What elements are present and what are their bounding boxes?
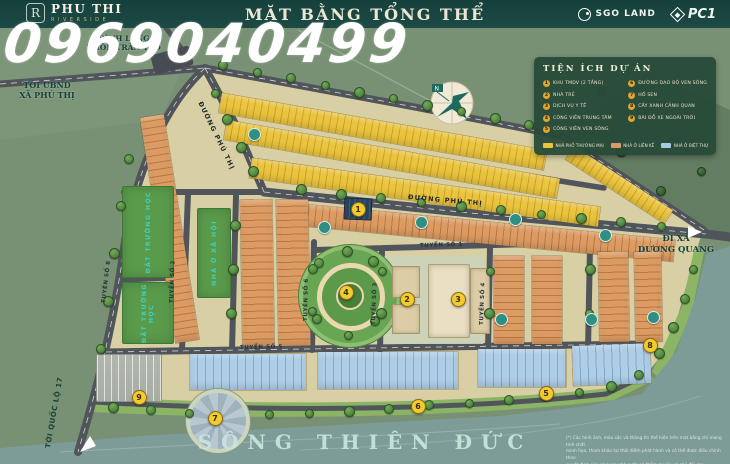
tree-icon bbox=[108, 402, 119, 413]
legend-zone: NHÀ Ở BIỆT THỰ bbox=[661, 143, 708, 148]
tree-icon bbox=[490, 113, 501, 124]
tree-icon bbox=[457, 107, 466, 116]
partner-pc1-label: PC1 bbox=[688, 7, 716, 22]
zone-swatch bbox=[661, 143, 671, 148]
legend-item-number-badge: 3 bbox=[543, 103, 550, 110]
tree-icon bbox=[342, 246, 353, 257]
legend-zone: NHÀ Ở LIỀN KỀ bbox=[611, 143, 655, 148]
tree-icon bbox=[96, 344, 106, 354]
to-ubnd-line2: XÃ PHÚ THỊ bbox=[4, 90, 90, 100]
tree-icon bbox=[354, 87, 365, 98]
legend-column-1: 1KHU TMDV (2 TẦNG)2NHÀ TRẺ3DỊCH VỤ Y TẾ4… bbox=[543, 80, 620, 138]
outdoor-parking-lot bbox=[96, 354, 162, 402]
tree-icon bbox=[296, 184, 307, 195]
tree-icon bbox=[248, 166, 259, 177]
block-code-badge bbox=[318, 221, 331, 234]
legend-item: 6ĐƯỜNG DẠO BỘ VEN SÔNG bbox=[628, 80, 707, 87]
townhouse-column bbox=[532, 256, 562, 344]
partner-sgo-land-label: SGO LAND bbox=[596, 9, 656, 19]
tree-icon bbox=[336, 189, 347, 200]
tree-icon bbox=[124, 154, 134, 164]
legend-item-label: CÔNG VIÊN VEN SÔNG bbox=[553, 127, 609, 132]
partner-logos: SGO LAND PC1 bbox=[578, 0, 716, 28]
tree-icon bbox=[689, 265, 698, 274]
to-duong-quang-label: ĐI XÃ DƯƠNG QUANG bbox=[628, 234, 724, 255]
legend-item-number-badge: 2 bbox=[543, 92, 550, 99]
legend-item-number-badge: 5 bbox=[543, 126, 550, 133]
pc1-diamond-icon bbox=[670, 6, 686, 22]
legend-item: 5CÔNG VIÊN VEN SÔNG bbox=[543, 126, 620, 133]
legend-item-label: KHU TMDV (2 TẦNG) bbox=[553, 81, 603, 86]
partner-pc1: PC1 bbox=[672, 7, 716, 22]
amenity-marker-3: 3 bbox=[451, 292, 466, 307]
tree-icon bbox=[344, 331, 353, 340]
townhouse-column bbox=[598, 251, 630, 342]
legend-item-label: CÔNG VIÊN TRUNG TÂM bbox=[553, 116, 612, 121]
kindergarten-building-2 bbox=[392, 304, 420, 334]
tree-icon bbox=[312, 314, 322, 324]
tree-icon bbox=[422, 100, 433, 111]
social-housing-label: NHÀ Ở XÃ HỘI bbox=[211, 220, 218, 286]
tree-icon bbox=[265, 410, 274, 419]
disclaimer-text: (*) Các hình ảnh, màu sắc và thông tin t… bbox=[566, 436, 724, 464]
tree-icon bbox=[524, 120, 534, 130]
zone-swatch bbox=[543, 143, 553, 148]
block-code-badge bbox=[509, 213, 522, 226]
block-code-badge bbox=[248, 128, 261, 141]
tree-icon bbox=[230, 220, 241, 231]
sgo-land-icon bbox=[578, 8, 591, 21]
zone-label: NHÀ PHỐ THƯƠNG MẠI bbox=[556, 143, 604, 148]
tree-icon bbox=[465, 399, 474, 408]
tree-icon bbox=[656, 186, 666, 196]
phone-watermark: 0969040499 bbox=[1, 12, 413, 75]
site-plan-poster: N ĐẤT TRƯỜNG HỌC ĐẤT TRƯỜNG HỌC NHÀ Ở XÃ… bbox=[0, 0, 730, 464]
social-housing-block: NHÀ Ở XÃ HỘI bbox=[197, 208, 231, 298]
tree-icon bbox=[321, 81, 330, 90]
legend-item-number-badge: 1 bbox=[543, 80, 550, 87]
tree-icon bbox=[657, 222, 666, 231]
legend-item: 7HỒ SEN bbox=[628, 92, 707, 99]
to-duong-quang-line1: ĐI XÃ bbox=[628, 234, 724, 245]
tree-icon bbox=[616, 217, 626, 227]
tree-icon bbox=[228, 264, 239, 275]
tree-icon bbox=[305, 409, 314, 418]
to-ubnd-line1: TỚI UBND bbox=[4, 80, 90, 90]
disclaimer-line: minh họa, tham khảo tại thời điểm phát h… bbox=[566, 449, 724, 462]
street-label-tuyen-5: TUYẾN SỐ 5 bbox=[240, 344, 283, 351]
tree-icon bbox=[344, 406, 355, 417]
tree-icon bbox=[486, 267, 495, 276]
legend-item-label: DỊCH VỤ Y TẾ bbox=[553, 104, 586, 109]
amenity-marker-9: 9 bbox=[132, 390, 147, 405]
tree-icon bbox=[537, 210, 546, 219]
tree-icon bbox=[634, 370, 644, 380]
compass-north-label: N bbox=[435, 86, 440, 93]
legend-item: 1KHU TMDV (2 TẦNG) bbox=[543, 80, 620, 87]
zone-swatch bbox=[611, 143, 621, 148]
school-land-label-2: ĐẤT TRƯỜNG HỌC bbox=[141, 283, 155, 343]
tree-icon bbox=[211, 89, 220, 98]
block-code-badge bbox=[599, 229, 612, 242]
compass-icon: N bbox=[431, 82, 473, 124]
block-code-badge bbox=[647, 311, 660, 324]
legend-zone-swatches: NHÀ PHỐ THƯƠNG MẠINHÀ Ở LIỀN KỀNHÀ Ở BIỆ… bbox=[543, 143, 707, 148]
tree-icon bbox=[496, 205, 506, 215]
block-code-badge bbox=[495, 313, 508, 326]
tree-icon bbox=[376, 193, 386, 203]
partner-sgo-land: SGO LAND bbox=[578, 8, 656, 21]
legend-item-number-badge: 7 bbox=[628, 92, 635, 99]
villa-row bbox=[478, 349, 566, 387]
townhouse-column bbox=[240, 199, 275, 346]
legend-item-number-badge: 8 bbox=[628, 103, 635, 110]
legend-panel: TIỆN ÍCH DỰ ÁN 1KHU TMDV (2 TẦNG)2NHÀ TR… bbox=[534, 57, 716, 155]
tree-icon bbox=[576, 213, 587, 224]
legend-item-number-badge: 6 bbox=[628, 80, 635, 87]
tree-icon bbox=[384, 404, 394, 414]
legend-item-label: HỒ SEN bbox=[638, 93, 657, 98]
disclaimer-line: (*) Các hình ảnh, màu sắc và thông tin t… bbox=[566, 436, 724, 449]
tree-icon bbox=[222, 114, 233, 125]
tree-icon bbox=[226, 308, 237, 319]
legend-item: 2NHÀ TRẺ bbox=[543, 92, 620, 99]
legend-zone: NHÀ PHỐ THƯƠNG MẠI bbox=[543, 143, 604, 148]
tree-icon bbox=[680, 294, 690, 304]
tree-icon bbox=[504, 395, 514, 405]
villa-row bbox=[190, 354, 306, 390]
legend-item-number-badge: 9 bbox=[628, 115, 635, 122]
villa-row bbox=[318, 352, 458, 389]
tree-icon bbox=[697, 167, 706, 176]
street-label-tuyen-6: TUYẾN SỐ 6 bbox=[303, 278, 310, 321]
tree-icon bbox=[606, 381, 617, 392]
tree-icon bbox=[575, 388, 584, 397]
tree-icon bbox=[146, 405, 156, 415]
school-land-block: ĐẤT TRƯỜNG HỌC bbox=[122, 186, 174, 278]
townhouse-column bbox=[634, 252, 663, 342]
townhouse-column bbox=[494, 256, 524, 344]
legend-item: 3DỊCH VỤ Y TẾ bbox=[543, 103, 620, 110]
legend-item: 4CÔNG VIÊN TRUNG TÂM bbox=[543, 115, 620, 122]
tree-icon bbox=[308, 264, 318, 274]
amenity-marker-8: 8 bbox=[643, 338, 658, 353]
tree-icon bbox=[389, 94, 398, 103]
to-ubnd-label: TỚI UBND XÃ PHÚ THỊ bbox=[4, 80, 90, 100]
legend-item-label: ĐƯỜNG DẠO BỘ VEN SÔNG bbox=[638, 81, 707, 86]
tree-icon bbox=[368, 256, 379, 267]
block-code-badge bbox=[415, 216, 428, 229]
legend-item: 8CÂY XANH CẢNH QUAN bbox=[628, 103, 707, 110]
zone-label: NHÀ Ở LIỀN KỀ bbox=[623, 143, 654, 148]
tree-icon bbox=[109, 248, 120, 259]
tree-icon bbox=[185, 409, 194, 418]
tree-icon bbox=[585, 264, 596, 275]
to-duong-quang-line2: DƯƠNG QUANG bbox=[628, 245, 724, 256]
amenity-marker-2: 2 bbox=[400, 292, 415, 307]
amenity-marker-7: 7 bbox=[208, 411, 223, 426]
amenity-marker-4: 4 bbox=[339, 285, 354, 300]
legend-column-2: 6ĐƯỜNG DẠO BỘ VEN SÔNG7HỒ SEN8CÂY XANH C… bbox=[628, 80, 707, 138]
amenity-marker-1: 1 bbox=[351, 202, 366, 217]
legend-item-label: NHÀ TRẺ bbox=[553, 93, 575, 98]
school-land-label: ĐẤT TRƯỜNG HỌC bbox=[145, 191, 152, 273]
road-internal-v2 bbox=[588, 246, 590, 350]
tree-icon bbox=[236, 142, 247, 153]
legend-item-number-badge: 4 bbox=[543, 115, 550, 122]
amenity-marker-6: 6 bbox=[411, 399, 426, 414]
street-label-tuyen-1: TUYẾN SỐ 1 bbox=[420, 242, 463, 249]
legend-item-label: CÂY XANH CẢNH QUAN bbox=[638, 104, 695, 109]
tree-icon bbox=[378, 267, 387, 276]
tree-icon bbox=[424, 400, 434, 410]
zone-label: NHÀ Ở BIỆT THỰ bbox=[674, 143, 709, 148]
amenity-marker-5: 5 bbox=[539, 386, 554, 401]
tree-icon bbox=[668, 322, 679, 333]
legend-item-label: BÃI ĐỖ XE NGOÀI TRỜI bbox=[638, 116, 695, 121]
school-land-block-2: ĐẤT TRƯỜNG HỌC bbox=[122, 282, 174, 344]
legend-item: 9BÃI ĐỖ XE NGOÀI TRỜI bbox=[628, 115, 707, 122]
legend-title: TIỆN ÍCH DỰ ÁN bbox=[543, 64, 707, 74]
block-code-badge bbox=[585, 313, 598, 326]
tree-icon bbox=[116, 201, 126, 211]
